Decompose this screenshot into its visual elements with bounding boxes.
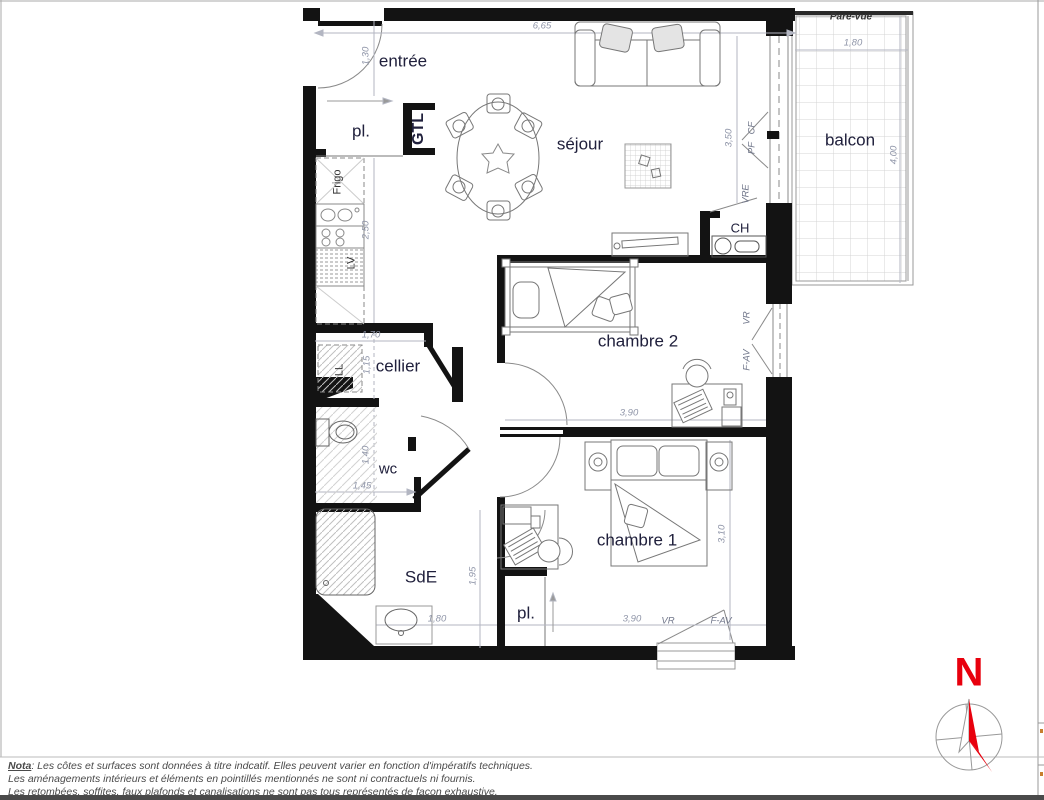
label-pare-vue: Pare-vue	[830, 12, 872, 23]
desk-chair	[686, 365, 708, 387]
dim-entree-door: 1,30	[361, 47, 372, 66]
dim-balcon-width: 1,80	[844, 38, 863, 49]
room-label-ch: CH	[731, 222, 750, 235]
room-label-pl-entry: pl.	[352, 123, 370, 140]
label-vr-chambre2: VR	[742, 311, 753, 324]
room-label-chambre1: chambre 1	[597, 532, 677, 549]
label-fav-chambre1: F-AV	[710, 616, 731, 627]
room-label-chambre2: chambre 2	[598, 333, 678, 350]
room-label-cellier: cellier	[376, 358, 420, 375]
dim-wc-width: 1,45	[353, 481, 372, 492]
chambre2-door-swing	[505, 363, 567, 425]
room-label-pl-chambre1: pl.	[517, 605, 535, 622]
desk-accessory	[531, 516, 540, 528]
shower	[316, 509, 375, 595]
desk-accessory	[724, 389, 736, 405]
water-heater	[712, 236, 766, 257]
entry-direction-arrow	[383, 98, 392, 104]
dim-chambre2-width: 3,90	[620, 408, 639, 419]
room-label-entree: entrée	[379, 53, 427, 70]
chambre1-door-swing	[500, 437, 560, 497]
dim-sde-depth: 1,95	[468, 567, 479, 586]
label-cf: CF	[747, 122, 758, 135]
rug	[625, 144, 671, 188]
dim-balcon-depth: 4,00	[889, 146, 900, 165]
desk-chair	[538, 540, 560, 562]
dim-sde-width: 1,80	[428, 614, 447, 625]
sofa-cushion	[599, 23, 633, 53]
entry-door-leaf	[318, 21, 382, 26]
closet-direction-arrow	[550, 593, 556, 601]
appliance-label-frigo: Frigo	[333, 169, 344, 194]
nota-line-2: Les aménagements intérieurs et éléments …	[8, 773, 476, 785]
wc-door-leaf	[414, 449, 469, 499]
pillow	[617, 446, 657, 476]
room-label-gtl: GTL	[411, 113, 427, 145]
floor-plan-drawing	[0, 0, 1044, 800]
nota-line-1: Nota: Les côtes et surfaces sont données…	[8, 760, 533, 772]
dim-cellier-depth: 1,15	[362, 356, 373, 375]
floor-plan-page: entrée pl. GTL séjour balcon CH chambre …	[0, 0, 1044, 800]
label-vre: VRE	[741, 184, 752, 204]
desk-accessory	[722, 407, 741, 426]
pillow	[513, 282, 539, 318]
dim-sejour-bay: 3,50	[724, 129, 735, 148]
north-label: N	[955, 651, 984, 696]
tv	[622, 237, 678, 248]
nota-line-3: Les retombées, soffites, faux plafonds e…	[8, 786, 498, 798]
dim-wc-depth: 1,40	[361, 446, 372, 465]
dim-sejour-width: 6,65	[533, 21, 552, 32]
laptop	[674, 389, 712, 422]
chambre1-furniture	[501, 440, 732, 569]
room-label-wc: wc	[379, 462, 397, 477]
room-label-sejour: séjour	[557, 136, 603, 153]
dim-kitchen-run: 2,50	[361, 221, 372, 240]
compass-needle-red	[969, 699, 979, 752]
nota-label: Nota	[8, 760, 31, 772]
appliance-label-ll: LL	[335, 364, 346, 376]
entry-door-swing	[318, 24, 382, 88]
north-compass	[936, 699, 1002, 772]
label-vr-chambre1: VR	[661, 616, 674, 627]
room-label-balcon: balcon	[825, 132, 875, 149]
appliance-label-lv: LV	[347, 257, 358, 270]
dim-cellier-width: 1,70	[362, 330, 381, 341]
dim-chambre1-depth: 3,10	[717, 525, 728, 544]
room-label-sde: SdE	[405, 569, 437, 586]
washbasin	[385, 609, 417, 631]
desk-shelf	[503, 507, 531, 524]
compass-needle-white	[959, 699, 969, 752]
sink	[316, 204, 364, 226]
sofa-cushion	[651, 24, 684, 52]
pillow	[659, 446, 699, 476]
dim-chambre1-width: 3,90	[623, 614, 642, 625]
label-pf: PF	[747, 142, 758, 154]
label-fav-chambre2: F-AV	[742, 349, 753, 370]
